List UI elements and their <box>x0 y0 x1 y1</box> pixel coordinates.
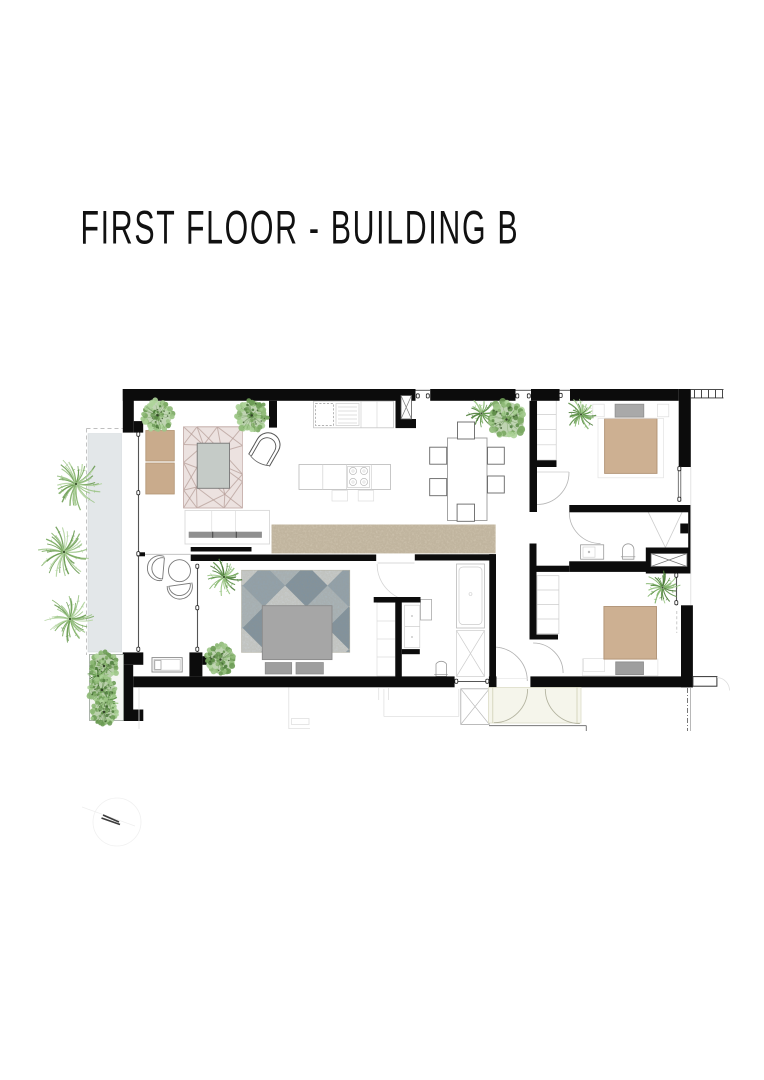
svg-text:FIRST FLOOR - BUILDING B: FIRST FLOOR - BUILDING B <box>81 202 520 254</box>
